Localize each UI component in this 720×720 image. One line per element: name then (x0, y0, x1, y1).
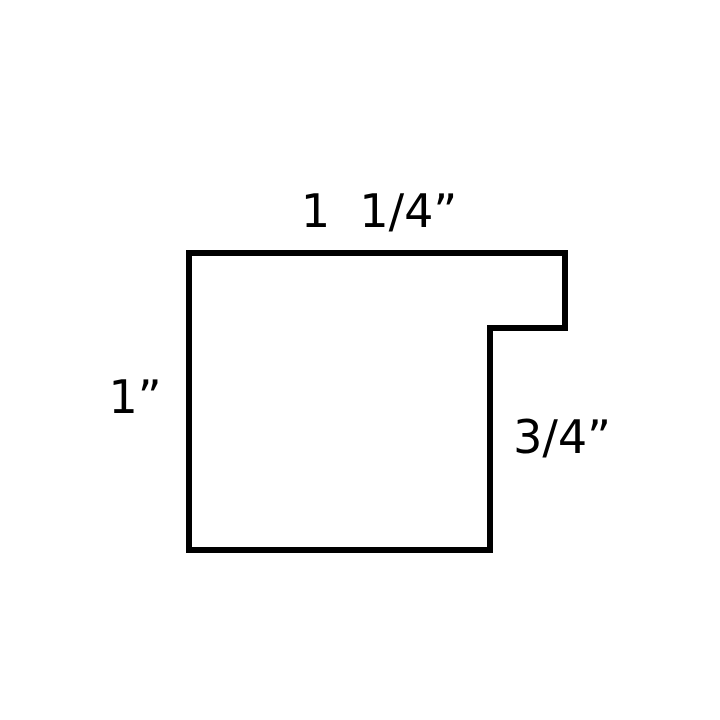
profile-shape (0, 0, 720, 720)
diagram-canvas: 1 1/4” 1” 3/4” (0, 0, 720, 720)
profile-outline (189, 253, 565, 550)
dimension-label-right-rabbet-height: 3/4” (513, 414, 611, 460)
dimension-label-top-width: 1 1/4” (301, 188, 457, 234)
dimension-label-left-height: 1” (108, 374, 161, 420)
